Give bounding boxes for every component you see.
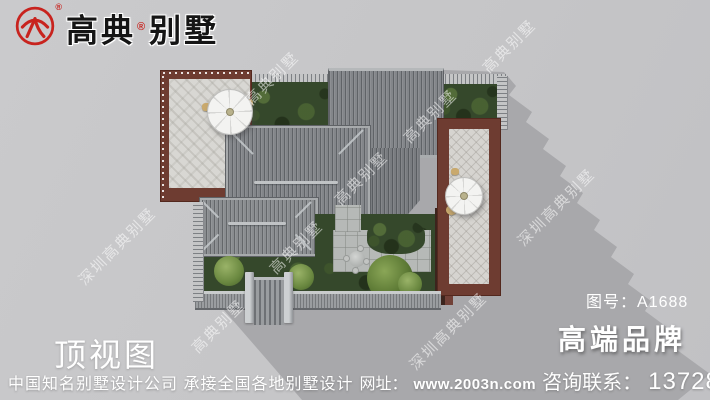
side-fence xyxy=(193,202,204,302)
patio-umbrella-2 xyxy=(445,177,483,215)
promo-image-canvas: 高典别墅高典别墅高典别墅高典别墅高典别墅高典别墅深圳高典别墅深圳高典别墅深圳高典… xyxy=(0,0,710,400)
brand-name: 高典®别墅 xyxy=(66,5,219,53)
brand-header: ® 高典®别墅 xyxy=(14,5,219,53)
drawing-number-value: A1688 xyxy=(637,294,688,311)
footer-bar: 中国知名别墅设计公司 承接全国各地别墅设计 网址： www.2003n.com … xyxy=(0,366,710,398)
roof-ridge xyxy=(254,181,338,184)
drawing-number: 图号：A1688 xyxy=(586,288,688,312)
gate-pillar xyxy=(284,272,293,323)
courtyard-table xyxy=(349,251,365,267)
website-url: www.2003n.com xyxy=(413,376,536,393)
website-label: 网址： xyxy=(359,370,407,394)
roof-ridge xyxy=(228,222,286,225)
entry-gate xyxy=(254,277,284,325)
contact-label: 咨询联系： xyxy=(542,366,642,395)
courtyard-shrubs xyxy=(367,220,425,254)
courtyard-seat xyxy=(344,256,349,261)
company-tagline: 中国知名别墅设计公司 承接全国各地别墅设计 xyxy=(8,370,353,394)
terrace-railing-top xyxy=(163,72,249,74)
terrace-railing-left xyxy=(162,74,164,198)
lower-wing-roof xyxy=(200,198,318,256)
courtyard-seat xyxy=(364,259,369,264)
brand-seal-icon: ® xyxy=(14,5,56,47)
courtyard-seat xyxy=(353,268,358,273)
watermark: 深圳高典别墅 xyxy=(74,203,161,290)
brand-slogan: 高端品牌 xyxy=(558,318,686,358)
terrace-chair xyxy=(451,168,459,175)
front-wall xyxy=(195,291,441,310)
courtyard-seat xyxy=(358,246,363,251)
drawing-number-label: 图号： xyxy=(586,294,637,311)
courtyard-path xyxy=(335,205,361,232)
contact-phone: 13728966966 xyxy=(648,368,710,396)
registered-mark: ® xyxy=(55,2,62,12)
registered-mark: ® xyxy=(137,21,148,33)
patio-umbrella-1 xyxy=(207,89,253,135)
gate-pillar xyxy=(245,272,254,323)
watermark: 高典别墅 xyxy=(478,15,541,78)
garden-tree xyxy=(214,256,244,286)
